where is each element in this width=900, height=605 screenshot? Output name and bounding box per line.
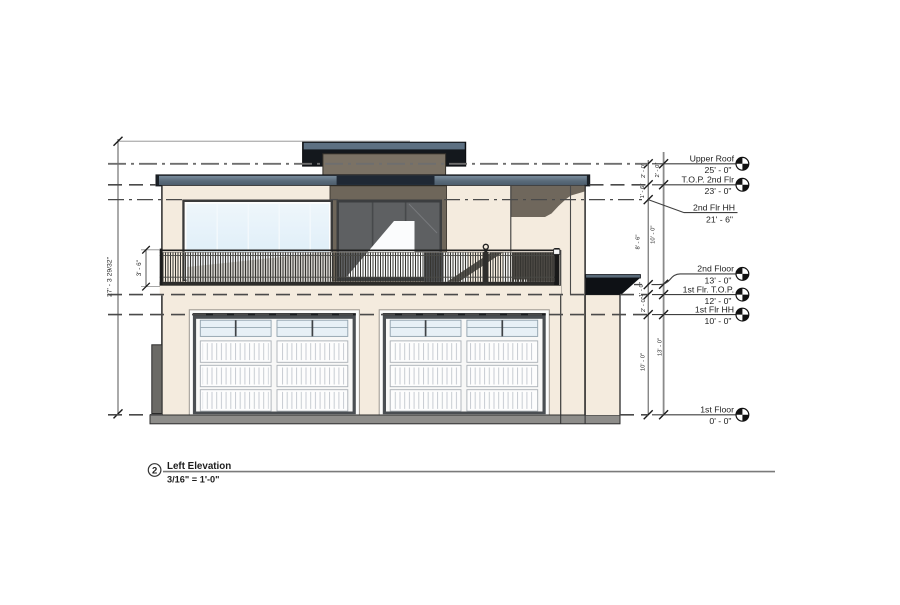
svg-text:3/16" = 1'-0": 3/16" = 1'-0" <box>167 475 220 485</box>
svg-text:0' - 0": 0' - 0" <box>709 416 731 426</box>
svg-text:27' - 3 29/32": 27' - 3 29/32" <box>107 256 114 297</box>
svg-text:Left Elevation: Left Elevation <box>167 461 231 472</box>
svg-text:2nd Floor: 2nd Floor <box>697 264 734 274</box>
svg-text:13' - 0": 13' - 0" <box>658 338 664 356</box>
svg-text:Upper Roof: Upper Roof <box>690 154 735 164</box>
svg-text:23' - 0": 23' - 0" <box>705 186 732 196</box>
svg-text:T.O.P. 2nd Flr: T.O.P. 2nd Flr <box>682 175 735 185</box>
svg-text:1st Flr HH: 1st Flr HH <box>695 304 734 314</box>
svg-text:1st Floor: 1st Floor <box>700 405 734 415</box>
svg-text:21' - 6": 21' - 6" <box>706 214 733 224</box>
svg-text:2: 2 <box>152 465 157 476</box>
svg-text:3' - 6": 3' - 6" <box>136 260 143 276</box>
svg-text:2' - 0": 2' - 0" <box>641 163 647 178</box>
svg-text:1' - 6": 1' - 6" <box>640 183 646 198</box>
svg-text:2nd Flr HH: 2nd Flr HH <box>693 202 735 212</box>
svg-text:8' - 6": 8' - 6" <box>636 234 642 249</box>
svg-text:1st Flr. T.O.P.: 1st Flr. T.O.P. <box>683 284 734 294</box>
svg-text:10' - 0": 10' - 0" <box>641 353 647 371</box>
svg-text:10' - 0": 10' - 0" <box>651 226 657 244</box>
svg-text:10' - 0": 10' - 0" <box>705 316 732 326</box>
svg-text:2' - 0": 2' - 0" <box>655 162 661 177</box>
svg-text:2' - 0": 2' - 0" <box>641 297 647 312</box>
